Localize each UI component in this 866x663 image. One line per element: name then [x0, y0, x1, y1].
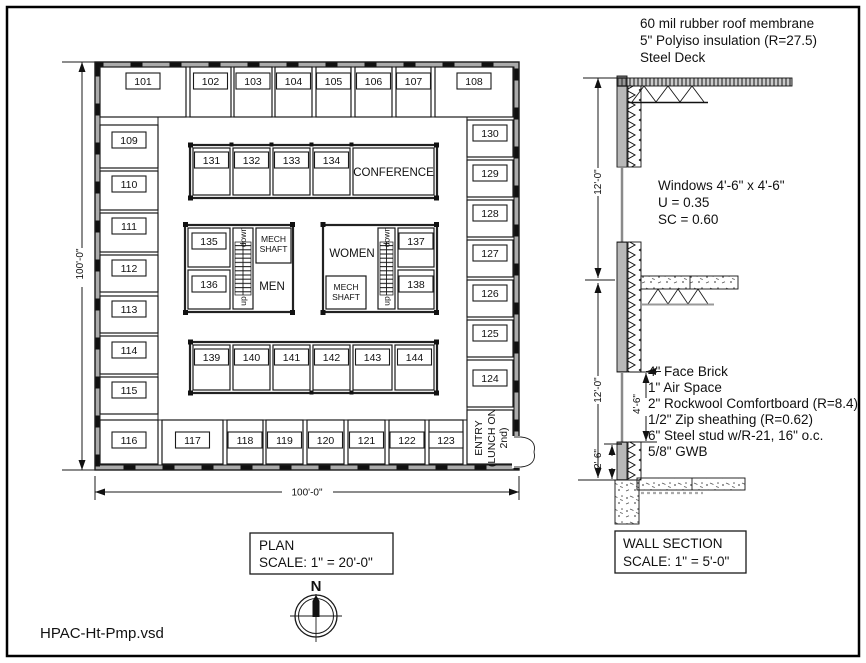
conference-label: CONFERENCE [353, 167, 434, 179]
stair2-down-label: down [382, 227, 392, 248]
window-note-1: Windows 4'-6" x 4'-6" [658, 178, 785, 193]
drawing-filename: HPAC-Ht-Pmp.vsd [40, 625, 164, 642]
room-134: 134 [313, 148, 350, 195]
room-130-number: 130 [481, 128, 499, 140]
roof-note-1: 60 mil rubber roof membrane [640, 16, 814, 31]
stair2-up-label: up [382, 296, 392, 306]
interior-block-bottom: 139 140 141 142 143 144 [188, 340, 439, 396]
room-125: 125 [467, 320, 513, 357]
room-104-number: 104 [285, 76, 303, 88]
room-140-number: 140 [243, 352, 261, 364]
roof-note-2: 5" Polyiso insulation (R=27.5) [640, 33, 817, 48]
conference-room: CONFERENCE [353, 148, 434, 195]
room-113-number: 113 [121, 304, 138, 316]
room-113: 113 [100, 296, 158, 333]
section-dim-lower: 12'-0" [593, 377, 604, 403]
wall-section-title-box: WALL SECTION SCALE: 1" = 5'-0" [615, 531, 746, 573]
room-119-number: 119 [276, 435, 293, 447]
room-115-number: 115 [121, 385, 138, 397]
room-118: 118 [227, 420, 263, 464]
section-dim-window: 4'-6" [632, 394, 643, 414]
room-112: 112 [100, 255, 158, 292]
room-110: 110 [100, 171, 158, 210]
drawing-canvas: 100'-0" 100'-0" 101 102 103 104 105 106 … [0, 0, 866, 663]
entry-label-line1: ENTRY [473, 420, 485, 455]
stairwell-left: down up [233, 227, 253, 309]
room-127-number: 127 [481, 248, 499, 260]
room-123-number: 123 [437, 435, 455, 447]
room-105-number: 105 [325, 76, 343, 88]
room-137: 137 [398, 228, 434, 267]
entry-corridor: ENTRY (LUNCH ON 2nd) [467, 409, 513, 467]
brick-layer-middle [617, 242, 627, 372]
room-121-number: 121 [358, 435, 376, 447]
plan-scale: SCALE: 1" = 20'-0" [259, 555, 373, 570]
room-117-number: 117 [184, 435, 201, 447]
room-124-number: 124 [481, 373, 499, 385]
room-130: 130 [467, 120, 513, 157]
room-101-number: 101 [134, 76, 152, 88]
mech-shaft-label-line2: SHAFT [260, 244, 288, 254]
room-129: 129 [467, 160, 513, 197]
room-126-number: 126 [481, 288, 499, 300]
room-141-number: 141 [283, 352, 301, 364]
room-115: 115 [100, 377, 158, 414]
room-140: 140 [233, 345, 270, 390]
wall-section-scale: SCALE: 1" = 5'-0" [623, 554, 730, 569]
room-128: 128 [467, 200, 513, 237]
room-108: 108 [435, 67, 513, 117]
room-133-number: 133 [283, 155, 301, 167]
wall-section-title: WALL SECTION [623, 536, 723, 551]
room-124: 124 [467, 360, 513, 407]
room-108-number: 108 [465, 76, 483, 88]
room-110-number: 110 [121, 179, 138, 191]
brick-layer-upper [617, 76, 627, 167]
room-144-number: 144 [406, 352, 424, 364]
room-138-number: 138 [407, 279, 425, 291]
plan-title: PLAN [259, 538, 294, 553]
room-112-number: 112 [121, 263, 138, 275]
entry-label-line2: (LUNCH ON [486, 409, 498, 467]
entry-label-line3: 2nd) [498, 427, 510, 448]
wall-note-4: 1/2" Zip sheathing (R=0.62) [648, 412, 813, 427]
women-room-label: WOMEN [329, 248, 374, 260]
stairwell-right: down up [378, 227, 395, 309]
insulation-layer-middle [628, 242, 641, 372]
insulation-layer-lower [628, 442, 641, 480]
room-104: 104 [275, 67, 312, 117]
room-103: 103 [234, 67, 272, 117]
room-121: 121 [348, 420, 385, 464]
room-114-number: 114 [121, 345, 138, 357]
mech-shaft2-label-line1: MECH [333, 282, 358, 292]
room-139-number: 139 [203, 352, 221, 364]
room-103-number: 103 [244, 76, 262, 88]
room-111-number: 111 [121, 221, 137, 233]
interior-block-top: 131 132 133 134 CONFERENCE [188, 143, 439, 201]
section-dim-upper: 12'-0" [593, 169, 604, 195]
room-106: 106 [355, 67, 392, 117]
room-132-number: 132 [243, 155, 261, 167]
room-135-number: 135 [200, 236, 218, 248]
room-116: 116 [100, 420, 158, 464]
room-101: 101 [100, 67, 186, 117]
room-138: 138 [398, 270, 434, 309]
men-room-label: MEN [259, 281, 285, 293]
wall-note-3: 2" Rockwool Comfortboard (R=8.4) [648, 396, 858, 411]
window-note-2: U = 0.35 [658, 195, 709, 210]
room-106-number: 106 [365, 76, 383, 88]
wall-note-2: 1" Air Space [648, 380, 722, 395]
room-143-number: 143 [364, 352, 382, 364]
room-142: 142 [313, 345, 350, 390]
insulation-layer-upper [628, 86, 641, 167]
mech-shaft-women: MECH SHAFT [326, 276, 366, 309]
room-129-number: 129 [481, 168, 499, 180]
room-109: 109 [100, 125, 158, 168]
room-128-number: 128 [481, 208, 499, 220]
interior-block-mid-right: WOMEN MECH SHAFT down up 137 138 [321, 222, 440, 315]
section-dim-sill: 2'-6" [593, 449, 604, 469]
interior-block-mid-left: 135 136 down up MECH SHAFT MEN [183, 222, 295, 315]
stair-up-label: up [238, 296, 248, 306]
mech-shaft-label-line1: MECH [261, 234, 286, 244]
room-137-number: 137 [407, 236, 425, 248]
room-135: 135 [188, 228, 230, 267]
wall-note-6: 5/8" GWB [648, 444, 708, 459]
room-139: 139 [193, 345, 230, 390]
room-131: 131 [193, 148, 230, 195]
mech-shaft2-label-line2: SHAFT [332, 292, 360, 302]
room-126: 126 [467, 280, 513, 317]
room-133: 133 [273, 148, 310, 195]
stair-down-label: down [238, 227, 248, 248]
room-136: 136 [188, 270, 230, 309]
mech-shaft-men: MECH SHAFT [256, 228, 291, 263]
room-109-number: 109 [120, 135, 138, 147]
room-120-number: 120 [317, 435, 335, 447]
room-117: 117 [162, 420, 223, 464]
foundation [615, 480, 639, 524]
room-105: 105 [316, 67, 351, 117]
plan-width-dimension: 100'-0" [291, 488, 322, 499]
room-125-number: 125 [481, 328, 499, 340]
room-118-number: 118 [237, 435, 254, 447]
room-102: 102 [190, 67, 231, 117]
room-142-number: 142 [323, 352, 341, 364]
room-114: 114 [100, 336, 158, 374]
plan-title-box: PLAN SCALE: 1" = 20'-0" [250, 533, 393, 574]
room-144: 144 [395, 345, 434, 390]
window-note-3: SC = 0.60 [658, 212, 718, 227]
drawing-sheet: 100'-0" 100'-0" 101 102 103 104 105 106 … [0, 0, 866, 663]
room-136-number: 136 [200, 279, 218, 291]
room-122: 122 [389, 420, 425, 464]
room-102-number: 102 [202, 76, 220, 88]
room-119: 119 [266, 420, 303, 464]
room-107-number: 107 [405, 76, 423, 88]
room-120: 120 [307, 420, 344, 464]
north-label: N [311, 578, 322, 595]
roof-note-3: Steel Deck [640, 50, 706, 65]
room-143: 143 [353, 345, 392, 390]
room-132: 132 [233, 148, 270, 195]
wall-note-5: 6" Steel stud w/R-21, 16" o.c. [648, 428, 823, 443]
room-123: 123 [429, 420, 463, 464]
room-141: 141 [273, 345, 310, 390]
room-127: 127 [467, 240, 513, 277]
room-111: 111 [100, 213, 158, 252]
room-107: 107 [396, 67, 431, 117]
room-134-number: 134 [323, 155, 341, 167]
room-131-number: 131 [203, 155, 221, 167]
room-122-number: 122 [398, 435, 416, 447]
plan-height-dimension: 100'-0" [75, 248, 86, 279]
room-116-number: 116 [121, 435, 138, 447]
brick-layer-lower [617, 442, 627, 480]
